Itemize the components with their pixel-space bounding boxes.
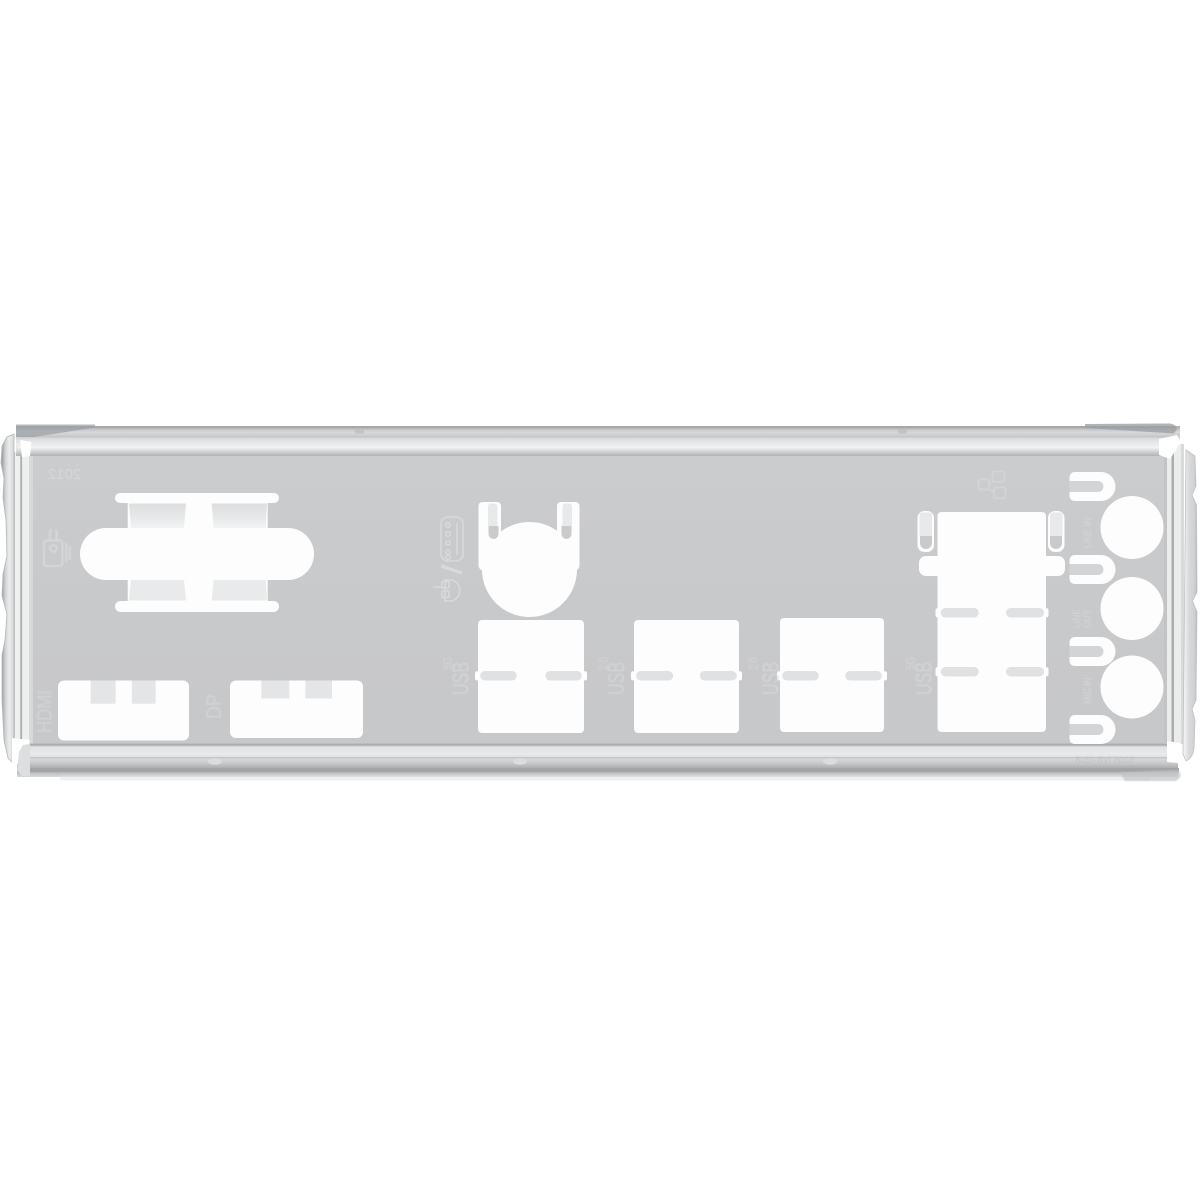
svg-text:5G: 5G bbox=[905, 657, 919, 669]
svg-text:2012: 2012 bbox=[48, 466, 81, 483]
svg-text:LINE IN: LINE IN bbox=[1082, 518, 1094, 548]
svg-text:2.0: 2.0 bbox=[598, 657, 612, 670]
svg-text:MIC IN: MIC IN bbox=[1082, 677, 1094, 704]
svg-text:DP: DP bbox=[203, 694, 227, 719]
svg-text:S105 IVB-0SI8: S105 IVB-0SI8 bbox=[1075, 755, 1135, 765]
svg-text:USB: USB bbox=[759, 662, 784, 695]
svg-text:HDMI: HDMI bbox=[34, 690, 57, 733]
svg-text:5G: 5G bbox=[442, 657, 456, 669]
svg-text:OUT: OUT bbox=[1082, 610, 1094, 628]
svg-text:2.0: 2.0 bbox=[747, 657, 761, 670]
